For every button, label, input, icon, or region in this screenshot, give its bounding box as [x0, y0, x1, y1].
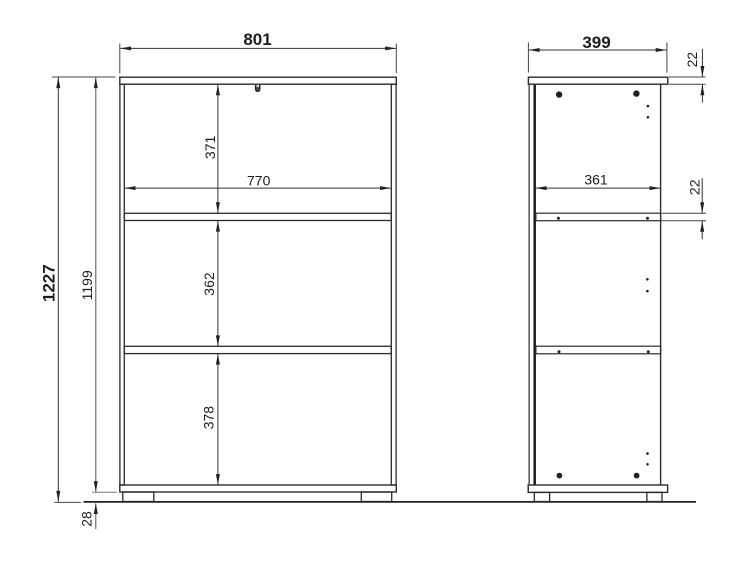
svg-text:378: 378 — [201, 406, 217, 430]
svg-text:361: 361 — [584, 172, 608, 188]
svg-text:770: 770 — [247, 173, 271, 189]
svg-text:1227: 1227 — [40, 264, 59, 302]
svg-text:1199: 1199 — [79, 270, 95, 300]
svg-text:371: 371 — [202, 136, 218, 160]
svg-text:22: 22 — [687, 179, 703, 195]
svg-text:801: 801 — [243, 30, 271, 49]
svg-text:22: 22 — [684, 52, 700, 68]
svg-text:399: 399 — [582, 33, 610, 52]
svg-text:362: 362 — [201, 272, 217, 296]
svg-text:28: 28 — [79, 511, 95, 527]
